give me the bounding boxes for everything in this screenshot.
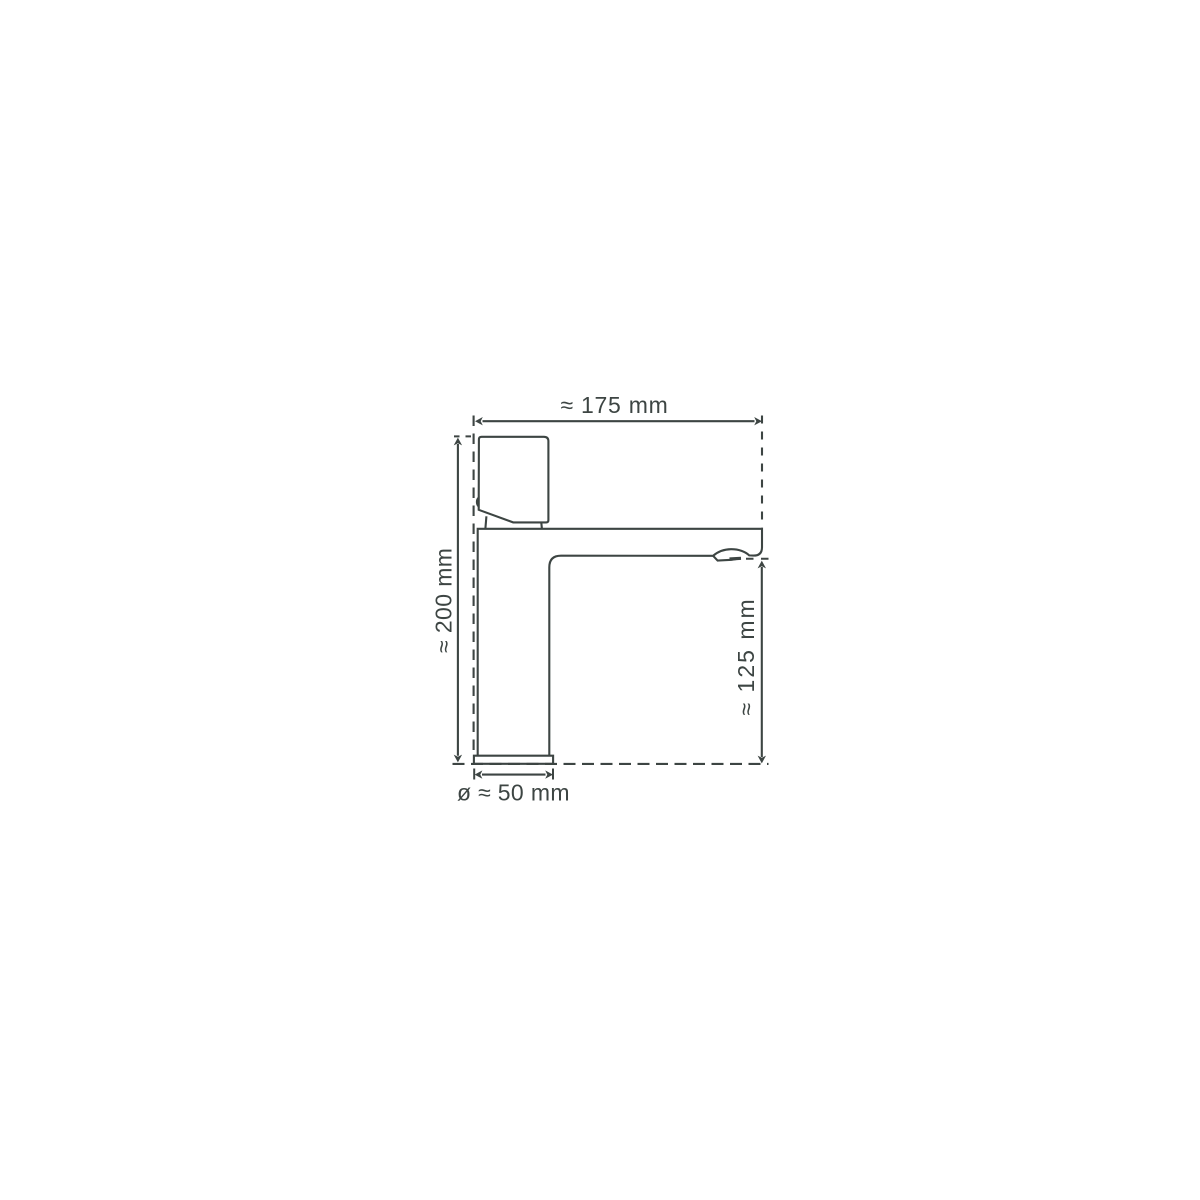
svg-text:ø ≈ 50 mm: ø ≈ 50 mm <box>457 780 570 806</box>
svg-text:≈ 175 mm: ≈ 175 mm <box>560 392 668 418</box>
svg-text:≈ 125 mm: ≈ 125 mm <box>733 597 759 715</box>
svg-text:≈ 200 mm: ≈ 200 mm <box>430 548 456 653</box>
